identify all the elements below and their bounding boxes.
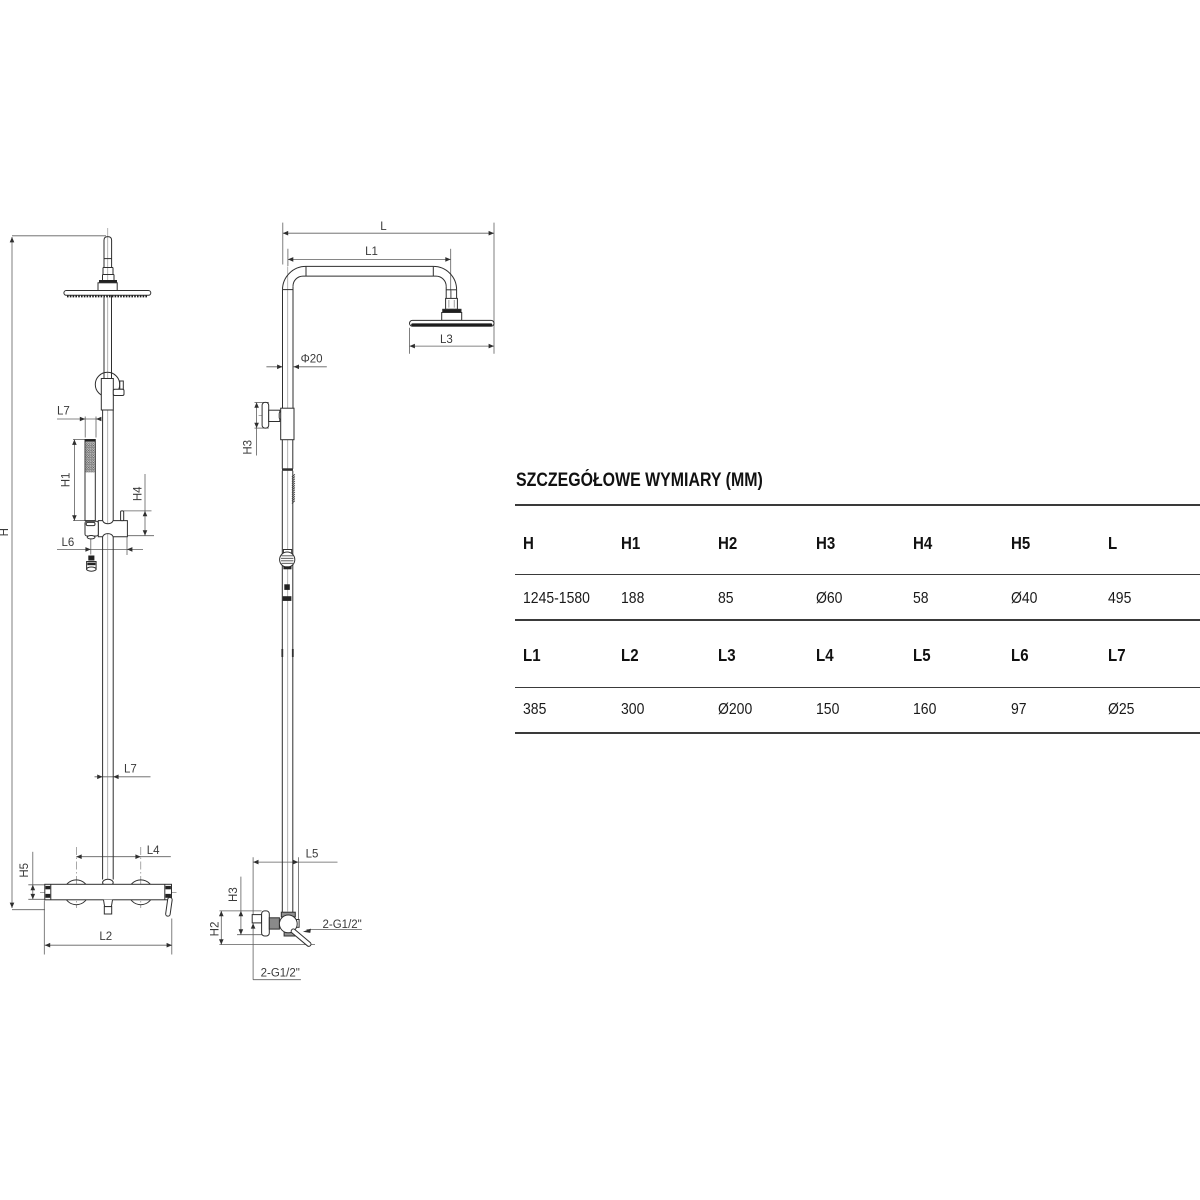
svg-text:H4: H4 [133,486,145,501]
svg-text:L6: L6 [62,537,75,549]
svg-text:H3: H3 [228,887,240,902]
svg-text:L4: L4 [147,845,160,857]
svg-text:Φ20: Φ20 [301,354,323,366]
svg-text:L7: L7 [124,763,137,775]
svg-text:L5: L5 [306,849,319,861]
svg-text:L1: L1 [365,246,378,258]
svg-text:L3: L3 [440,334,453,346]
svg-text:2-G1/2": 2-G1/2" [261,968,300,980]
svg-text:2-G1/2": 2-G1/2" [323,919,362,931]
svg-text:H1: H1 [61,473,73,488]
svg-text:H5: H5 [19,863,31,878]
svg-text:H: H [0,528,11,536]
svg-text:L2: L2 [99,931,112,943]
svg-text:H3: H3 [243,440,255,455]
svg-text:L: L [380,221,387,233]
svg-text:H2: H2 [209,922,221,937]
svg-text:L7: L7 [57,406,70,418]
